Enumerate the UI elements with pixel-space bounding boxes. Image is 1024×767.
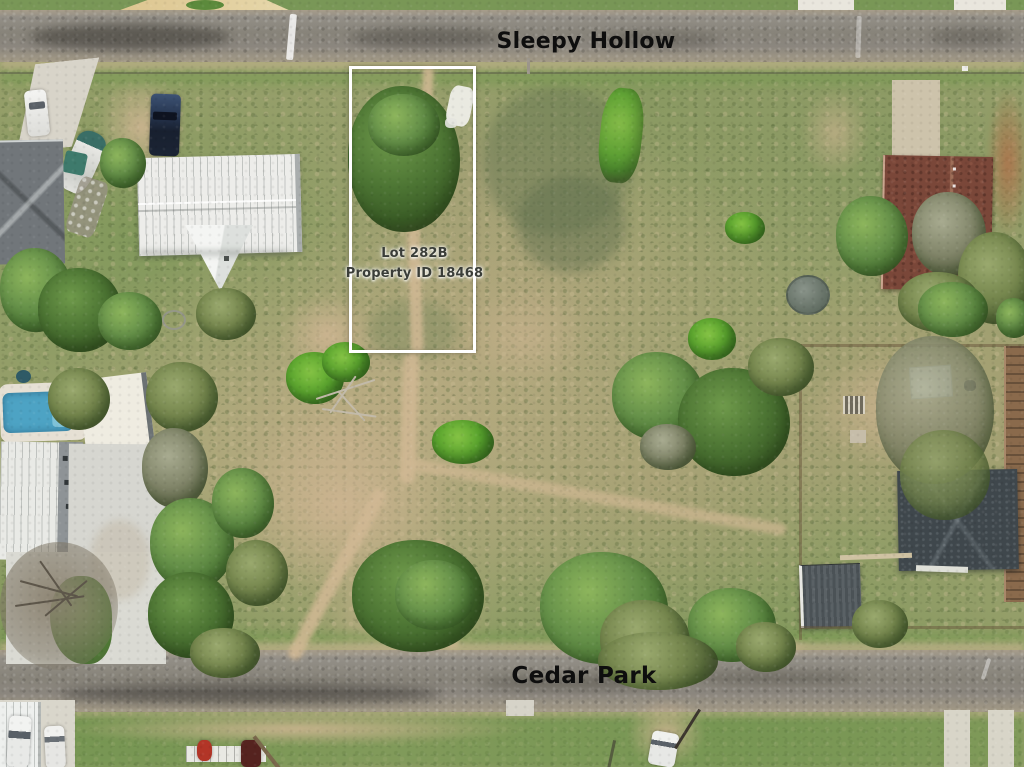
- street-label-sleepy-hollow: Sleepy Hollow: [436, 29, 736, 54]
- driveway: [892, 80, 940, 160]
- scrub-wash: [516, 176, 626, 272]
- tree: [226, 540, 288, 606]
- fence-line: [800, 626, 1024, 629]
- barn-window: [63, 456, 68, 461]
- street-label-cedar-park: Cedar Park: [434, 663, 734, 689]
- white-object: [962, 66, 968, 71]
- utility-pole: [527, 58, 530, 74]
- roof-ridge: [138, 199, 296, 205]
- red-car: [197, 740, 212, 761]
- white-pickup: [6, 715, 32, 767]
- tree: [98, 292, 162, 350]
- property-boundary: [349, 66, 476, 353]
- asphalt-smudge: [930, 28, 1010, 46]
- concrete-pad: [850, 430, 866, 443]
- road-marking: [981, 658, 992, 680]
- hot-tub: [16, 370, 31, 383]
- tree: [640, 424, 696, 470]
- aerial-photo: Lot 282B Property ID 18468 Sleepy Hollow…: [0, 0, 1024, 767]
- bush: [186, 0, 224, 10]
- lot-label-line1: Lot 282B: [342, 244, 487, 264]
- eave-shadow: [140, 250, 290, 256]
- asphalt-smudge: [60, 684, 440, 704]
- tree: [142, 428, 208, 508]
- roof-ridge-shadow: [138, 206, 296, 212]
- round-tarp-structure: [786, 275, 830, 315]
- tree: [48, 368, 110, 430]
- tree: [918, 282, 988, 337]
- gable-vent: [224, 256, 229, 261]
- bush: [432, 420, 494, 464]
- power-line: [0, 72, 1024, 74]
- white-car: [44, 726, 66, 767]
- blue-pickup-truck: [149, 93, 181, 156]
- green-canopy: [62, 150, 88, 176]
- road-marking: [286, 14, 297, 60]
- bush: [725, 212, 765, 244]
- truck-windshield: [153, 112, 177, 121]
- driveway-strip: [944, 710, 970, 767]
- lot-label: Lot 282B Property ID 18468: [342, 244, 487, 283]
- tree: [212, 468, 274, 538]
- white-car: [24, 89, 51, 137]
- tree: [736, 622, 796, 672]
- tree: [900, 430, 990, 520]
- fire-pit-ring: [162, 310, 186, 330]
- tree: [100, 138, 146, 188]
- tree: [395, 560, 475, 630]
- bush: [688, 318, 736, 360]
- dirt-patch: [800, 88, 870, 178]
- driveway-apron: [506, 700, 534, 716]
- tree: [146, 362, 218, 432]
- tree: [836, 196, 908, 276]
- tree: [996, 298, 1024, 338]
- bush: [852, 600, 908, 648]
- dirt-strip: [60, 712, 530, 746]
- dirt-patch: [460, 288, 590, 388]
- bush: [196, 288, 256, 340]
- driveway-strip: [988, 710, 1014, 767]
- road-marking: [855, 16, 861, 58]
- asphalt-smudge: [30, 24, 230, 50]
- lot-label-line2: Property ID 18468: [342, 264, 487, 284]
- gray-roof-house: [0, 139, 65, 264]
- tree: [748, 338, 814, 396]
- tree: [190, 628, 260, 678]
- pallet: [843, 396, 865, 414]
